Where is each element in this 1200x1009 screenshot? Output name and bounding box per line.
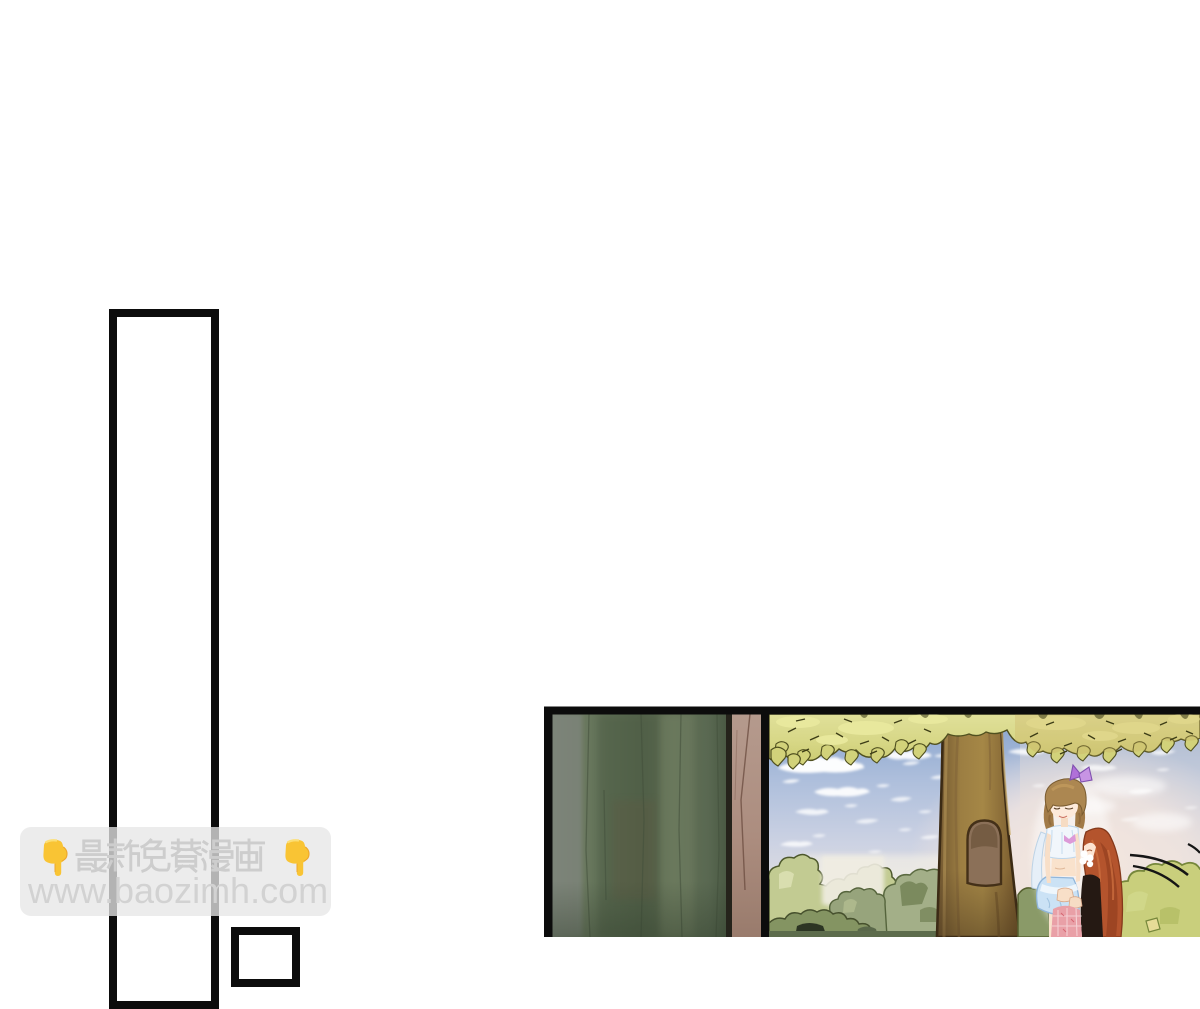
svg-text:www.baozimh.com: www.baozimh.com <box>27 870 328 911</box>
